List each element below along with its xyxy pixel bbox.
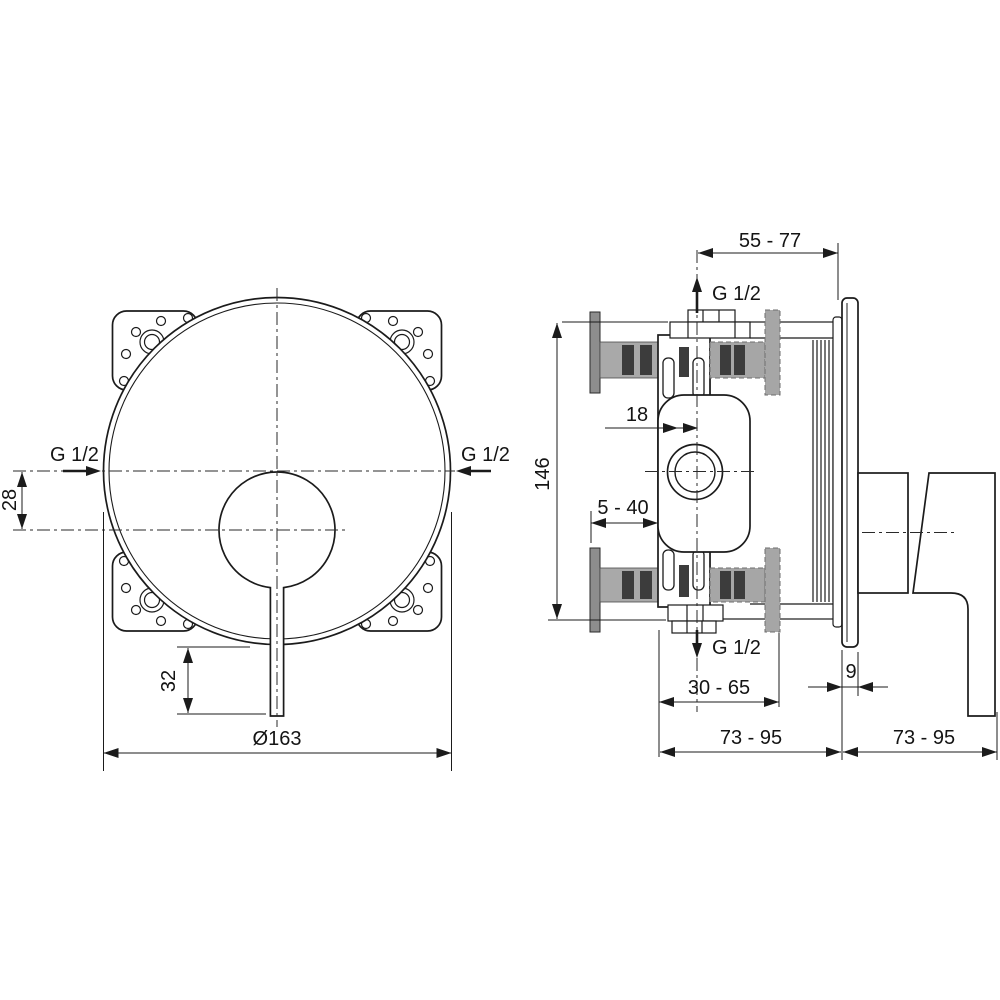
dim-28-arrow-down — [17, 514, 27, 529]
anchor-hatch — [734, 345, 745, 375]
inlet-left-label: G 1/2 — [50, 444, 99, 466]
dim-163-arrow-right — [437, 748, 452, 758]
top-nut-large — [670, 322, 750, 338]
bottom-nut-large — [668, 605, 723, 621]
bottom-nut-small — [672, 621, 716, 633]
dim-540-arrow-left — [591, 518, 606, 528]
cartridge-housing — [658, 395, 750, 552]
body-slot — [663, 550, 674, 590]
anchor-hatch — [640, 571, 652, 599]
outlet-bottom-arrow — [692, 643, 702, 658]
dim-18-label: 18 — [626, 404, 648, 426]
dim-28-arrow-up — [17, 472, 27, 487]
dim-5577-arrow-left — [698, 248, 713, 258]
dim-540-arrow-right — [643, 518, 658, 528]
dim-7395b-arrow-left — [843, 747, 858, 757]
dim-7395b-arrow-right — [982, 747, 997, 757]
body-slot — [663, 358, 674, 398]
body-hatch-top — [679, 347, 689, 377]
dim-163-arrow-left — [104, 748, 119, 758]
side-view: 55 - 77 G 1/2 146 18 5 - 40 G 1/2 3 — [532, 230, 997, 760]
dim-7395a-arrow-left — [660, 747, 675, 757]
anchor-hatch — [720, 571, 731, 599]
dim-32-arrow-down — [183, 698, 193, 713]
anchor-hatch — [640, 345, 652, 375]
anchor-hatch — [720, 345, 731, 375]
dim-7395a-arrow-right — [826, 747, 841, 757]
dim-3065-arrow-left — [659, 697, 674, 707]
outlet-top-label: G 1/2 — [712, 283, 761, 305]
handle-lever-side — [913, 473, 995, 716]
body-slot — [693, 550, 704, 590]
dim-5577-arrow-right — [823, 248, 838, 258]
dim-32-arrow-up — [183, 648, 193, 663]
front-view: G 1/2 G 1/2 28 32 Ø163 — [0, 288, 510, 771]
inlet-left-arrow — [86, 466, 101, 476]
dim-163-label: Ø163 — [253, 728, 302, 750]
dim-5577-label: 55 - 77 — [739, 230, 801, 252]
wall-plate-side-step — [833, 317, 842, 627]
inlet-right-arrow — [456, 466, 471, 476]
wall-flange-top-right — [765, 310, 780, 395]
outlet-top-arrow — [692, 277, 702, 292]
dim-9-arrow-left — [827, 682, 842, 692]
dim-9-arrow-right — [858, 682, 873, 692]
dim-7395b-label: 73 - 95 — [893, 727, 955, 749]
dim-32-label: 32 — [158, 670, 180, 692]
dim-7395a-label: 73 - 95 — [720, 727, 782, 749]
dim-9-label: 9 — [845, 661, 856, 683]
dim-28-label: 28 — [0, 489, 21, 511]
shower-mixer-technical-drawing: G 1/2 G 1/2 28 32 Ø163 — [0, 0, 1000, 1000]
dim-3065-arrow-right — [764, 697, 779, 707]
anchor-hatch — [622, 345, 634, 375]
dim-146-arrow-up — [552, 323, 562, 338]
top-nut-small — [688, 310, 735, 322]
dim-146-label: 146 — [532, 457, 554, 490]
anchor-hatch — [622, 571, 634, 599]
body-slot — [693, 358, 704, 398]
wall-flange-bottom-left — [590, 548, 600, 632]
wall-plate-side — [842, 298, 858, 647]
outlet-bottom-label: G 1/2 — [712, 637, 761, 659]
anchor-hatch — [734, 571, 745, 599]
inlet-right-label: G 1/2 — [461, 444, 510, 466]
technical-drawing-page: G 1/2 G 1/2 28 32 Ø163 — [0, 0, 1000, 1000]
dim-146-arrow-down — [552, 604, 562, 619]
wall-flange-top-left — [590, 312, 600, 393]
dim-3065-label: 30 - 65 — [688, 677, 750, 699]
wall-flange-bottom-right — [765, 548, 780, 632]
dim-540-label: 5 - 40 — [597, 497, 648, 519]
body-hatch-bottom — [679, 565, 689, 597]
